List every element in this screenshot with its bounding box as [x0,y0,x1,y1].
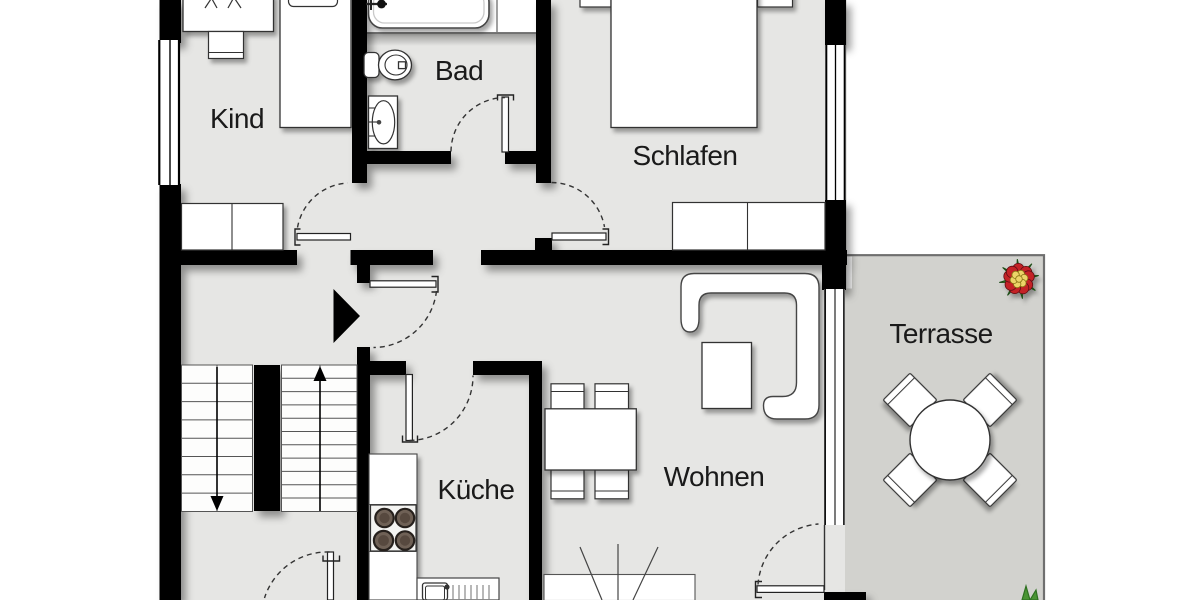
svg-text:Wohnen: Wohnen [664,461,765,492]
svg-text:Terrasse: Terrasse [889,318,992,349]
svg-text:Kind: Kind [210,103,264,134]
svg-text:Schlafen: Schlafen [633,140,738,171]
svg-text:Bad: Bad [435,55,483,86]
svg-text:Küche: Küche [438,474,515,505]
